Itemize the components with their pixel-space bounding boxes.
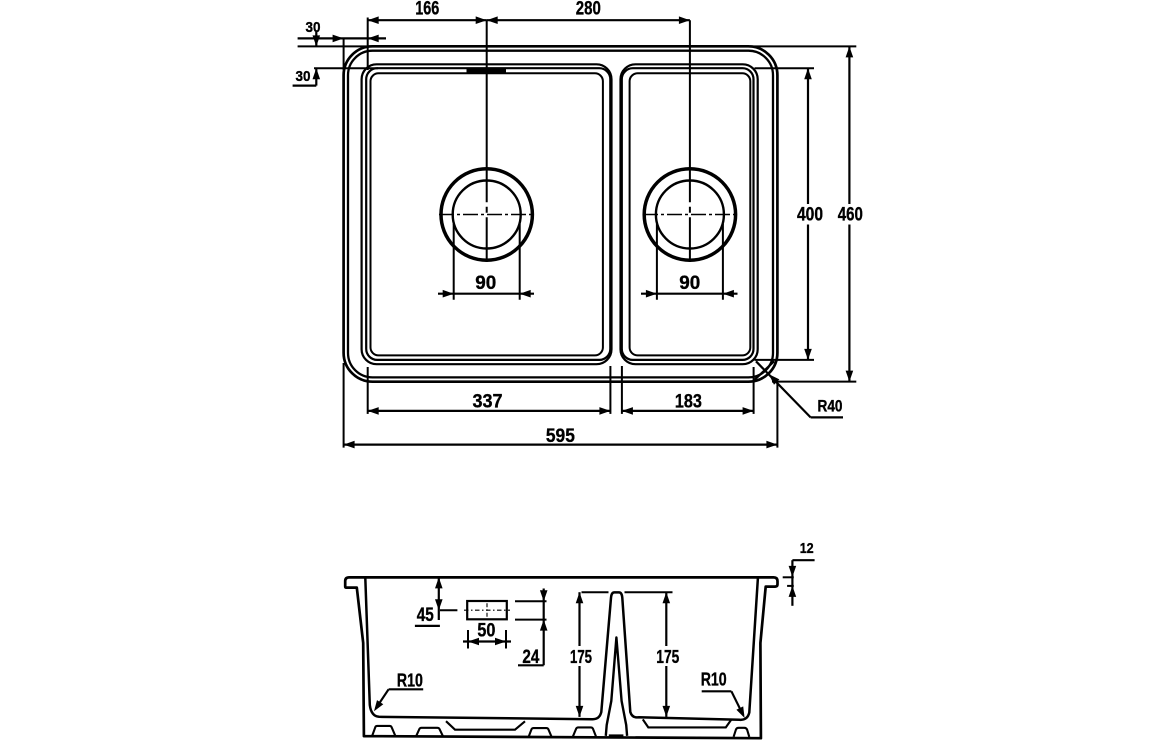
svg-text:50: 50 bbox=[477, 620, 495, 641]
svg-text:90: 90 bbox=[475, 273, 496, 294]
svg-text:175: 175 bbox=[656, 647, 679, 667]
svg-text:175: 175 bbox=[570, 647, 592, 667]
svg-text:400: 400 bbox=[797, 204, 823, 225]
svg-text:R40: R40 bbox=[818, 397, 843, 415]
svg-text:12: 12 bbox=[800, 540, 814, 557]
svg-text:30: 30 bbox=[306, 19, 321, 36]
svg-text:R10: R10 bbox=[397, 670, 423, 690]
svg-text:90: 90 bbox=[679, 273, 700, 294]
svg-text:183: 183 bbox=[675, 391, 702, 412]
svg-text:R10: R10 bbox=[701, 670, 727, 690]
svg-text:337: 337 bbox=[473, 391, 503, 412]
svg-text:280: 280 bbox=[576, 0, 601, 20]
svg-text:30: 30 bbox=[296, 68, 311, 85]
svg-text:460: 460 bbox=[838, 204, 863, 225]
svg-text:24: 24 bbox=[522, 647, 539, 668]
svg-text:595: 595 bbox=[546, 426, 575, 447]
svg-text:45: 45 bbox=[417, 605, 434, 626]
svg-text:166: 166 bbox=[415, 0, 439, 20]
